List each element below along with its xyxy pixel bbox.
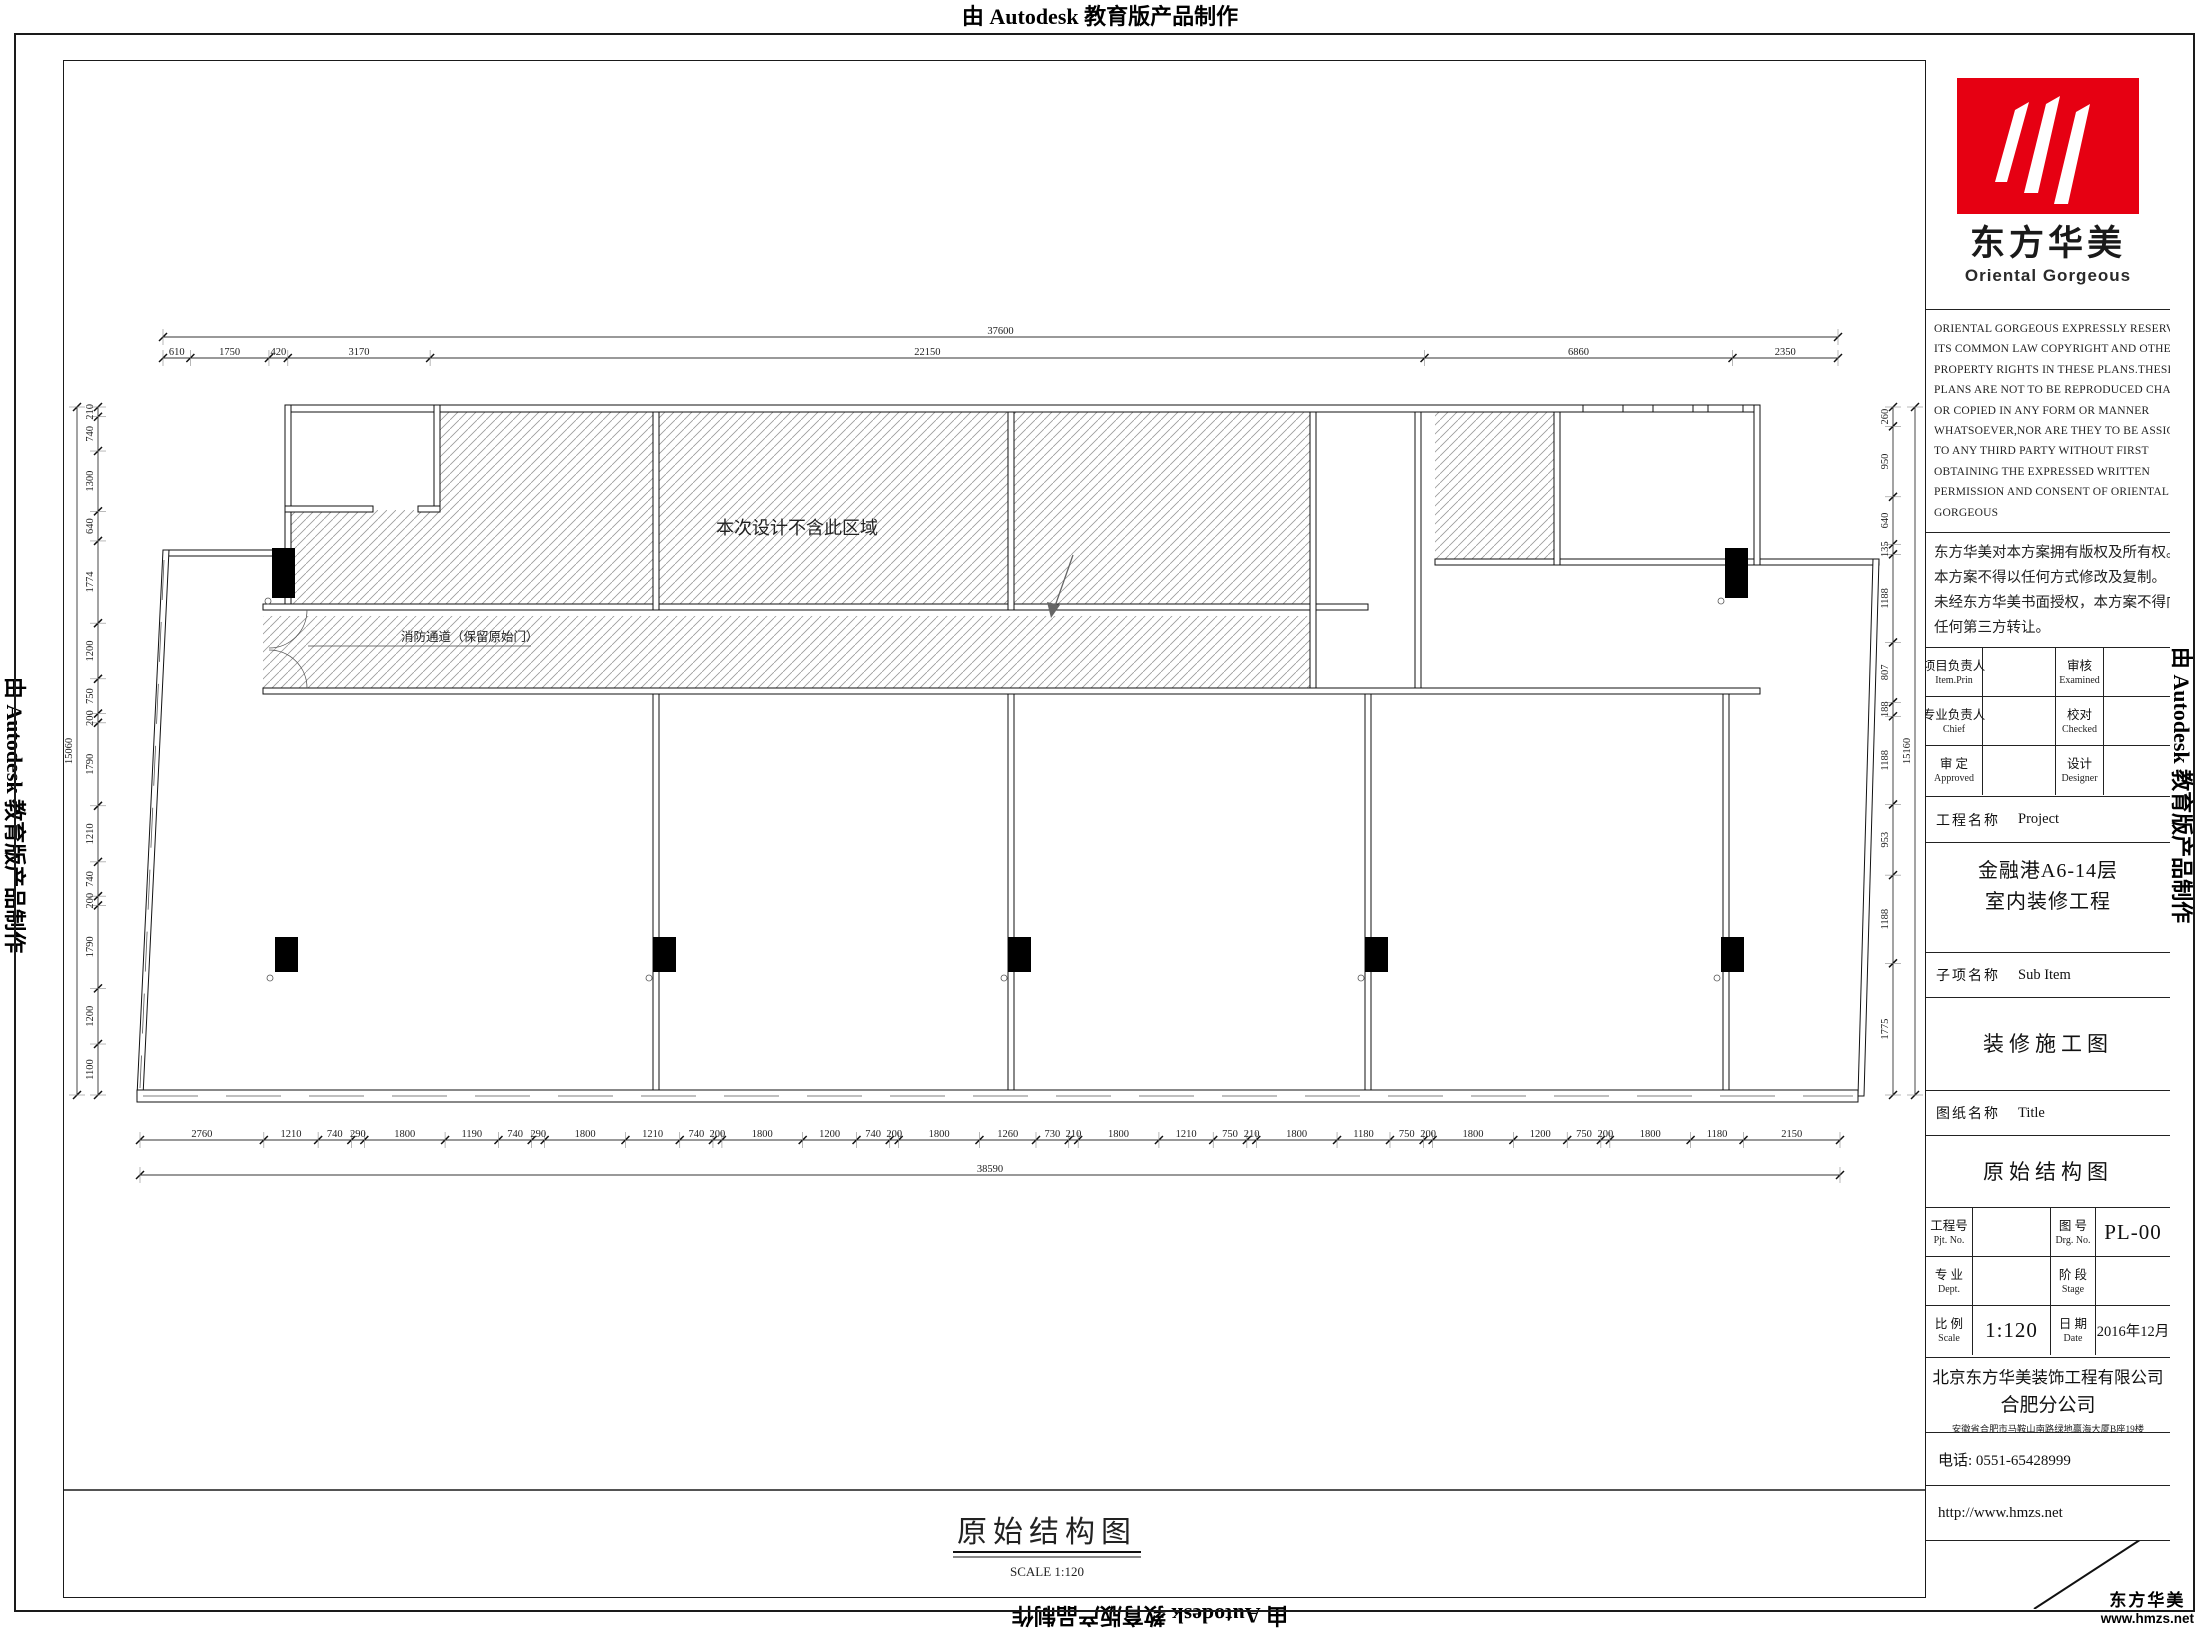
svg-text:200: 200 bbox=[1420, 1129, 1436, 1140]
top-left-room bbox=[287, 407, 438, 510]
right-section-wall bbox=[1560, 559, 1879, 565]
right-hatch-block bbox=[1435, 412, 1560, 565]
svg-text:1210: 1210 bbox=[642, 1129, 663, 1140]
info-label: 比 例 Scale bbox=[1926, 1306, 1973, 1355]
copyright-cn-line: 未经东方华美书面授权，本方案不得向 bbox=[1934, 591, 2164, 616]
company-address: 安徽省合肥市马鞍山南路绿地赢海大厦B座19楼 bbox=[1926, 1421, 2170, 1433]
partition-3 bbox=[1365, 694, 1371, 1090]
info-label: 专 业 Dept. bbox=[1926, 1257, 1973, 1305]
svg-text:290: 290 bbox=[350, 1129, 366, 1140]
room-bottom-wall-a bbox=[285, 506, 373, 512]
svg-text:210: 210 bbox=[1244, 1129, 1260, 1140]
subitem-value: 装修施工图 bbox=[1926, 998, 2170, 1091]
svg-text:2350: 2350 bbox=[1775, 347, 1796, 358]
svg-text:1190: 1190 bbox=[461, 1129, 482, 1140]
personnel-table: 项目负责人 Item.Prin 审核 Examined 专业负责人 Chief … bbox=[1926, 648, 2170, 797]
svg-text:1210: 1210 bbox=[280, 1129, 301, 1140]
svg-text:1800: 1800 bbox=[1462, 1129, 1483, 1140]
top-wall bbox=[285, 405, 1760, 412]
svg-text:750: 750 bbox=[1576, 1129, 1592, 1140]
svg-text:15060: 15060 bbox=[64, 738, 75, 764]
copyright-line: TO ANY THIRD PARTY WITHOUT FIRST bbox=[1934, 441, 2164, 461]
copyright-cn-section: 东方华美对本方案拥有版权及所有权。 本方案不得以任何方式修改及复制。 未经东方华… bbox=[1926, 533, 2170, 648]
info-label: 阶 段 Stage bbox=[2051, 1257, 2096, 1305]
project-name: 金融港A6-14层 室内装修工程 bbox=[1926, 856, 2170, 953]
svg-text:15160: 15160 bbox=[1902, 738, 1913, 764]
personnel-value bbox=[2104, 648, 2170, 696]
excluded-area-hatch bbox=[290, 412, 1310, 610]
table-row: 专业负责人 Chief 校对 Checked bbox=[1926, 697, 2170, 746]
svg-text:22150: 22150 bbox=[914, 347, 940, 358]
footer-brand-name: 东方华美 bbox=[2101, 1586, 2194, 1611]
svg-text:1188: 1188 bbox=[1880, 750, 1891, 771]
personnel-label: 审 定 Approved bbox=[1926, 746, 1983, 795]
band-wall-left bbox=[1310, 412, 1316, 688]
partition-4 bbox=[1723, 694, 1729, 1090]
svg-text:260: 260 bbox=[1880, 409, 1891, 425]
column bbox=[272, 548, 295, 598]
copyright-en-section: ORIENTAL GORGEOUS EXPRESSLY RESERVES ITS… bbox=[1926, 310, 2170, 533]
personnel-label: 审核 Examined bbox=[2056, 648, 2104, 696]
company-branch: 合肥分公司 bbox=[1926, 1390, 2170, 1417]
left-slant-wall bbox=[137, 550, 169, 1096]
room-bottom-wall-b bbox=[418, 506, 440, 512]
svg-text:1180: 1180 bbox=[1707, 1129, 1728, 1140]
excluded-area-note: 本次设计不含此区域 bbox=[716, 518, 878, 538]
svg-text:1800: 1800 bbox=[1108, 1129, 1129, 1140]
svg-text:38590: 38590 bbox=[977, 1164, 1003, 1175]
title-block: 东方华美 Oriental Gorgeous ORIENTAL GORGEOUS… bbox=[1925, 60, 2170, 1598]
subitem-label-row: 子项名称 Sub Item bbox=[1926, 953, 2170, 998]
window-2 bbox=[1653, 405, 1693, 412]
svg-text:6860: 6860 bbox=[1568, 347, 1589, 358]
svg-text:210: 210 bbox=[85, 404, 96, 420]
floor-plan: 消防通道（保留原始门） 本次设计不含此区域 原始结构图 SCALE 1:120 … bbox=[63, 60, 1925, 1598]
drawing-number: PL-00 bbox=[2096, 1208, 2170, 1256]
logo-name-en: Oriental Gorgeous bbox=[1926, 266, 2170, 286]
svg-text:1790: 1790 bbox=[85, 754, 96, 775]
info-value bbox=[1973, 1208, 2051, 1256]
svg-text:2150: 2150 bbox=[1781, 1129, 1802, 1140]
right-slant-wall bbox=[1858, 559, 1879, 1096]
copyright-line: PROPERTY RIGHTS IN THESE PLANS.THESE bbox=[1934, 360, 2164, 380]
company-section: 北京东方华美装饰工程有限公司 合肥分公司 安徽省合肥市马鞍山南路绿地赢海大厦B座… bbox=[1926, 1358, 2170, 1433]
personnel-value bbox=[1983, 746, 2056, 795]
svg-text:37600: 37600 bbox=[987, 326, 1013, 337]
svg-text:1800: 1800 bbox=[394, 1129, 415, 1140]
footer-brand: 东方华美 www.hmzs.net bbox=[2101, 1586, 2194, 1626]
svg-text:1774: 1774 bbox=[85, 571, 96, 593]
column bbox=[1365, 937, 1388, 972]
svg-text:210: 210 bbox=[1066, 1129, 1082, 1140]
left-horizontal-wall bbox=[163, 550, 291, 556]
svg-text:740: 740 bbox=[85, 426, 96, 442]
svg-text:1180: 1180 bbox=[1353, 1129, 1374, 1140]
svg-text:1210: 1210 bbox=[85, 823, 96, 844]
corridor-bottom-wall bbox=[263, 688, 1760, 694]
svg-text:610: 610 bbox=[169, 347, 185, 358]
white-band bbox=[1316, 412, 1415, 688]
svg-text:1200: 1200 bbox=[1530, 1129, 1551, 1140]
personnel-value bbox=[2104, 697, 2170, 745]
svg-text:1260: 1260 bbox=[997, 1129, 1018, 1140]
footer-url: www.hmzs.net bbox=[2101, 1611, 2194, 1626]
column-mark bbox=[1001, 975, 1007, 981]
copyright-cn-line: 本方案不得以任何方式修改及复制。 bbox=[1934, 566, 2164, 591]
room-right-wall bbox=[434, 405, 440, 512]
svg-text:750: 750 bbox=[1222, 1129, 1238, 1140]
scale-value: 1:120 bbox=[1973, 1306, 2051, 1355]
personnel-label: 校对 Checked bbox=[2056, 697, 2104, 745]
copyright-line: OR COPIED IN ANY FORM OR MANNER bbox=[1934, 401, 2164, 421]
svg-text:740: 740 bbox=[507, 1129, 523, 1140]
svg-text:1790: 1790 bbox=[85, 936, 96, 957]
svg-text:1100: 1100 bbox=[85, 1059, 96, 1080]
column-mark bbox=[1714, 975, 1720, 981]
copyright-cn-line: 任何第三方转让。 bbox=[1934, 616, 2164, 641]
svg-text:420: 420 bbox=[271, 347, 287, 358]
table-row: 专 业 Dept. 阶 段 Stage bbox=[1926, 1257, 2170, 1306]
column bbox=[1008, 937, 1031, 972]
svg-text:740: 740 bbox=[327, 1129, 343, 1140]
band-wall-right bbox=[1415, 412, 1421, 688]
copyright-line: OBTAINING THE EXPRESSED WRITTEN bbox=[1934, 462, 2164, 482]
svg-text:2760: 2760 bbox=[191, 1129, 212, 1140]
svg-text:200: 200 bbox=[85, 893, 96, 909]
column-mark bbox=[1358, 975, 1364, 981]
personnel-label: 项目负责人 Item.Prin bbox=[1926, 648, 1983, 696]
partition-2 bbox=[1008, 694, 1014, 1090]
svg-text:1800: 1800 bbox=[575, 1129, 596, 1140]
right-vertical-wall bbox=[1754, 405, 1760, 565]
svg-text:953: 953 bbox=[1880, 832, 1891, 848]
svg-text:1188: 1188 bbox=[1880, 588, 1891, 609]
window-3 bbox=[1708, 405, 1743, 412]
autodesk-stamp-top: 由 Autodesk 教育版产品制作 bbox=[962, 0, 1238, 31]
logo-section: 东方华美 Oriental Gorgeous bbox=[1926, 60, 2170, 310]
bay-divider-1 bbox=[653, 412, 659, 610]
svg-text:1800: 1800 bbox=[752, 1129, 773, 1140]
table-row: 比 例 Scale 1:120 日 期 Date 2016年12月 bbox=[1926, 1306, 2170, 1355]
svg-text:1800: 1800 bbox=[1640, 1129, 1661, 1140]
svg-text:740: 740 bbox=[865, 1129, 881, 1140]
svg-text:740: 740 bbox=[688, 1129, 704, 1140]
corridor-hatch bbox=[263, 616, 1368, 688]
personnel-label: 设计 Designer bbox=[2056, 746, 2104, 795]
copyright-line: GORGEOUS bbox=[1934, 503, 2164, 523]
website-row: http://www.hmzs.net bbox=[1926, 1486, 2170, 1541]
svg-text:1200: 1200 bbox=[85, 1006, 96, 1027]
svg-text:200: 200 bbox=[85, 710, 96, 726]
svg-text:200: 200 bbox=[886, 1129, 902, 1140]
table-row: 项目负责人 Item.Prin 审核 Examined bbox=[1926, 648, 2170, 697]
svg-text:200: 200 bbox=[710, 1129, 726, 1140]
room-left-wall bbox=[285, 405, 291, 512]
svg-text:730: 730 bbox=[1044, 1129, 1060, 1140]
svg-text:200: 200 bbox=[1597, 1129, 1613, 1140]
info-value bbox=[1973, 1257, 2051, 1305]
column-mark bbox=[267, 975, 273, 981]
company-logo-icon bbox=[1957, 78, 2139, 214]
svg-text:135: 135 bbox=[1880, 541, 1891, 557]
bay-divider-2 bbox=[1008, 412, 1014, 610]
svg-text:1200: 1200 bbox=[819, 1129, 840, 1140]
corridor-top-wall bbox=[263, 604, 1368, 610]
personnel-value bbox=[2104, 746, 2170, 795]
svg-text:1800: 1800 bbox=[929, 1129, 950, 1140]
phone-row: 电话: 0551-65428999 bbox=[1926, 1433, 2170, 1486]
svg-text:1800: 1800 bbox=[1286, 1129, 1307, 1140]
drawing-scale: SCALE 1:120 bbox=[1010, 1564, 1084, 1579]
column bbox=[653, 937, 676, 972]
copyright-line: ORIENTAL GORGEOUS EXPRESSLY RESERVES bbox=[1934, 319, 2164, 339]
logo-name-cn: 东方华美 bbox=[1926, 222, 2170, 266]
svg-text:1775: 1775 bbox=[1880, 1019, 1891, 1040]
svg-text:750: 750 bbox=[1399, 1129, 1415, 1140]
svg-text:750: 750 bbox=[85, 688, 96, 704]
drawing-title: 原始结构图 bbox=[957, 1516, 1137, 1549]
svg-text:807: 807 bbox=[1880, 665, 1891, 681]
svg-text:188: 188 bbox=[1880, 701, 1891, 717]
svg-text:1300: 1300 bbox=[85, 471, 96, 492]
drawing-sheet: 由 Autodesk 教育版产品制作 由 Autodesk 教育版产品制作 由 … bbox=[0, 0, 2200, 1632]
svg-text:1750: 1750 bbox=[219, 347, 240, 358]
info-label: 图 号 Drg. No. bbox=[2051, 1208, 2096, 1256]
copyright-line: PLANS ARE NOT TO BE REPRODUCED CHANGED bbox=[1934, 380, 2164, 400]
info-value bbox=[2096, 1257, 2170, 1305]
column bbox=[1721, 937, 1744, 972]
copyright-line: WHATSOEVER,NOR ARE THEY TO BE ASSIGHED bbox=[1934, 421, 2164, 441]
svg-text:1200: 1200 bbox=[85, 640, 96, 661]
column-mark bbox=[1718, 598, 1724, 604]
svg-text:740: 740 bbox=[85, 871, 96, 887]
info-label: 工程号 Pjt. No. bbox=[1926, 1208, 1973, 1256]
personnel-label: 专业负责人 Chief bbox=[1926, 697, 1983, 745]
svg-text:1210: 1210 bbox=[1176, 1129, 1197, 1140]
svg-text:640: 640 bbox=[85, 518, 96, 534]
svg-text:1188: 1188 bbox=[1880, 909, 1891, 930]
info-label: 日 期 Date bbox=[2051, 1306, 2096, 1355]
window-1 bbox=[1583, 405, 1623, 412]
project-label-row: 工程名称 Project bbox=[1926, 797, 2170, 843]
personnel-value bbox=[1983, 697, 2056, 745]
svg-text:290: 290 bbox=[530, 1129, 546, 1140]
personnel-value bbox=[1983, 648, 2056, 696]
sheet-label-row: 图纸名称 Title bbox=[1926, 1091, 2170, 1136]
sheet-value: 原始结构图 bbox=[1926, 1136, 2170, 1208]
svg-text:3170: 3170 bbox=[348, 347, 369, 358]
svg-text:640: 640 bbox=[1880, 513, 1891, 529]
column bbox=[1725, 548, 1748, 598]
right-block-right-wall bbox=[1554, 412, 1560, 565]
copyright-line: ITS COMMON LAW COPYRIGHT AND OTHER bbox=[1934, 339, 2164, 359]
info-table: 工程号 Pjt. No. 图 号 Drg. No. PL-00 专 业 Dept… bbox=[1926, 1208, 2170, 1358]
column-mark bbox=[646, 975, 652, 981]
left-slant-window-line bbox=[140, 560, 164, 1088]
right-block-bottom-wall bbox=[1435, 559, 1560, 565]
column-mark bbox=[265, 598, 271, 604]
partition-1 bbox=[653, 694, 659, 1090]
svg-text:950: 950 bbox=[1880, 454, 1891, 470]
copyright-line: PERMISSION AND CONSENT OF ORIENTAL bbox=[1934, 482, 2164, 502]
corridor-note-label: 消防通道（保留原始门） bbox=[401, 629, 539, 644]
copyright-cn-line: 东方华美对本方案拥有版权及所有权。 bbox=[1934, 541, 2164, 566]
column bbox=[275, 937, 298, 972]
table-row: 审 定 Approved 设计 Designer bbox=[1926, 746, 2170, 795]
table-row: 工程号 Pjt. No. 图 号 Drg. No. PL-00 bbox=[1926, 1208, 2170, 1257]
date-value: 2016年12月 bbox=[2096, 1306, 2170, 1355]
company-name: 北京东方华美装饰工程有限公司 bbox=[1926, 1364, 2170, 1388]
